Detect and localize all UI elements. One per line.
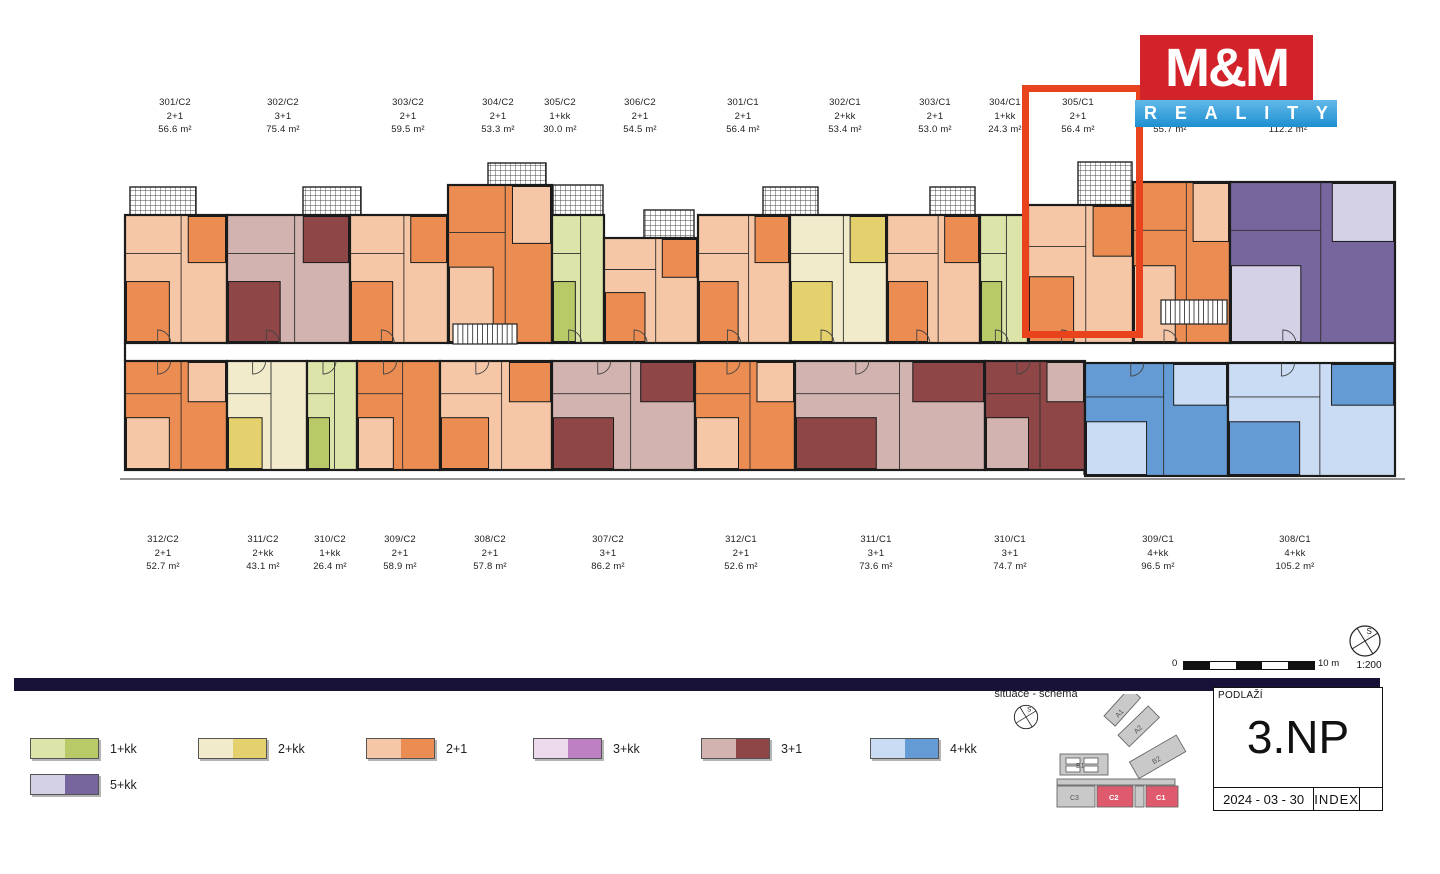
index-label: INDEX: [1313, 788, 1359, 810]
plan-unit-310-C2: [307, 361, 357, 470]
plan-unit-310-C1: [985, 361, 1085, 470]
unit-area: 52.6 m²: [693, 560, 789, 574]
unit-id: 308/C2: [442, 533, 538, 547]
plan-unit-301-C1: [698, 215, 790, 343]
unit-label-302-C1: 302/C12+kk53.4 m²: [797, 96, 893, 137]
plan-unit-303-C2: [350, 215, 448, 343]
unit-id: 306/C2: [592, 96, 688, 110]
logo-mm-block: M&M: [1140, 35, 1313, 100]
unit-id: 303/C2: [360, 96, 456, 110]
unit-layout: 2+1: [442, 547, 538, 561]
unit-layout: 4+kk: [1110, 547, 1206, 561]
unit-id: 302/C1: [797, 96, 893, 110]
highlight-box-305-C1: [1022, 85, 1143, 338]
unit-area: 59.5 m²: [360, 123, 456, 137]
unit-layout: 3+1: [828, 547, 924, 561]
unit-label-312-C2: 312/C22+152.7 m²: [115, 533, 211, 574]
logo-letter: E: [1175, 103, 1187, 124]
unit-id: 312/C2: [115, 533, 211, 547]
legend-item-2+kk: 2+kk: [198, 738, 305, 759]
plan-unit-311-C2: [227, 361, 307, 470]
unit-area: 56.6 m²: [127, 123, 223, 137]
unit-label-301-C2: 301/C22+156.6 m²: [127, 96, 223, 137]
logo-reality-strip: REALITY: [1135, 100, 1337, 127]
plan-unit-303-C1: [887, 215, 980, 343]
unit-area: 53.4 m²: [797, 123, 893, 137]
title-block: PODLAŽÍ 3.NP 2024 - 03 - 30 INDEX: [1213, 687, 1383, 811]
north-compass-icon: S: [1347, 623, 1383, 664]
unit-area: 105.2 m²: [1247, 560, 1343, 574]
unit-layout: 2+1: [693, 547, 789, 561]
unit-area: 86.2 m²: [560, 560, 656, 574]
mm-reality-logo: M&M REALITY: [1135, 35, 1337, 127]
legend-label: 4+kk: [950, 742, 977, 756]
unit-layout: 2+1: [352, 547, 448, 561]
swatch-dark: [401, 739, 435, 758]
plan-unit-307-C1: [1230, 182, 1395, 343]
unit-layout: 2+kk: [797, 110, 893, 124]
svg-text:C2: C2: [1109, 793, 1119, 802]
unit-layout: 3+1: [560, 547, 656, 561]
legend-swatch: [30, 774, 99, 795]
unit-area: 96.5 m²: [1110, 560, 1206, 574]
plan-unit-302-C2: [227, 215, 350, 343]
legend-label: 3+kk: [613, 742, 640, 756]
floor-number: 3.NP: [1214, 710, 1382, 764]
swatch-dark: [233, 739, 267, 758]
legend-swatch: [870, 738, 939, 759]
svg-text:S: S: [1367, 627, 1372, 636]
plan-unit-304-C1: [980, 215, 1028, 343]
unit-label-306-C2: 306/C22+154.5 m²: [592, 96, 688, 137]
unit-id: 307/C2: [560, 533, 656, 547]
legend-swatch: [533, 738, 602, 759]
unit-label-307-C2: 307/C23+186.2 m²: [560, 533, 656, 574]
legend-item-4+kk: 4+kk: [870, 738, 977, 759]
legend-swatch: [30, 738, 99, 759]
swatch-dark: [65, 739, 99, 758]
plan-unit-308-C1: [1228, 363, 1395, 476]
legend-item-3+1: 3+1: [701, 738, 802, 759]
legend-swatch: [701, 738, 770, 759]
unit-label-310-C1: 310/C13+174.7 m²: [962, 533, 1058, 574]
unit-id: 310/C1: [962, 533, 1058, 547]
unit-area: 52.7 m²: [115, 560, 211, 574]
legend-item-3+kk: 3+kk: [533, 738, 640, 759]
unit-layout: 2+1: [115, 547, 211, 561]
logo-letter: T: [1287, 103, 1298, 124]
legend-item-5+kk: 5+kk: [30, 774, 137, 795]
swatch-light: [702, 739, 736, 758]
unit-id: 301/C1: [695, 96, 791, 110]
unit-id: 308/C1: [1247, 533, 1343, 547]
legend-label: 2+1: [446, 742, 467, 756]
unit-id: 301/C2: [127, 96, 223, 110]
unit-label-312-C1: 312/C12+152.6 m²: [693, 533, 789, 574]
plan-unit-309-C1: [1085, 363, 1228, 476]
unit-id: 302/C2: [235, 96, 331, 110]
plan-unit-312-C1: [695, 361, 795, 470]
legend-label: 1+kk: [110, 742, 137, 756]
unit-label-308-C2: 308/C22+157.8 m²: [442, 533, 538, 574]
unit-layout: 2+1: [127, 110, 223, 124]
legend-label: 2+kk: [278, 742, 305, 756]
plan-unit-312-C2: [125, 361, 227, 470]
unit-label-303-C2: 303/C22+159.5 m²: [360, 96, 456, 137]
floor-label: PODLAŽÍ: [1218, 690, 1263, 701]
plan-unit-306-C2: [604, 238, 698, 343]
unit-layout: 2+1: [695, 110, 791, 124]
site-map: A1A2B1B2C3C2C1: [1052, 694, 1202, 821]
swatch-dark: [568, 739, 602, 758]
plan-unit-311-C1: [795, 361, 985, 470]
unit-area: 73.6 m²: [828, 560, 924, 574]
svg-text:C3: C3: [1070, 795, 1079, 802]
plan-unit-304-C2: [448, 185, 552, 343]
legend-label: 3+1: [781, 742, 802, 756]
unit-label-309-C2: 309/C22+158.9 m²: [352, 533, 448, 574]
legend-item-2+1: 2+1: [366, 738, 467, 759]
svg-text:C1: C1: [1156, 793, 1166, 802]
logo-letter: R: [1144, 103, 1157, 124]
legend-swatch: [198, 738, 267, 759]
plan-unit-302-C1: [790, 215, 887, 343]
index-value-cell: [1359, 788, 1382, 810]
svg-text:B1: B1: [1076, 763, 1085, 770]
plan-unit-309-C2: [357, 361, 440, 470]
situace-compass-icon: S: [1012, 703, 1040, 736]
unit-label-301-C1: 301/C12+156.4 m²: [695, 96, 791, 137]
unit-area: 56.4 m²: [695, 123, 791, 137]
unit-area: 54.5 m²: [592, 123, 688, 137]
unit-layout: 2+1: [360, 110, 456, 124]
unit-layout: 3+1: [235, 110, 331, 124]
unit-id: 312/C1: [693, 533, 789, 547]
floorplan-sheet: 301/C22+156.6 m²302/C23+175.4 m²303/C22+…: [0, 0, 1440, 874]
unit-area: 58.9 m²: [352, 560, 448, 574]
plan-unit-307-C2: [552, 361, 695, 470]
unit-id: 309/C1: [1110, 533, 1206, 547]
swatch-light: [367, 739, 401, 758]
plan-unit-301-C2: [125, 215, 227, 343]
legend-swatch: [366, 738, 435, 759]
logo-mm-text: M&M: [1165, 37, 1288, 99]
unit-label-308-C1: 308/C14+kk105.2 m²: [1247, 533, 1343, 574]
logo-letter: L: [1235, 103, 1246, 124]
plan-unit-305-C2: [552, 215, 604, 343]
unit-id: 309/C2: [352, 533, 448, 547]
logo-letter: A: [1205, 103, 1218, 124]
svg-text:S: S: [1027, 707, 1031, 714]
swatch-dark: [905, 739, 939, 758]
unit-layout: 2+1: [592, 110, 688, 124]
unit-area: 74.7 m²: [962, 560, 1058, 574]
swatch-light: [31, 739, 65, 758]
unit-layout: 4+kk: [1247, 547, 1343, 561]
swatch-light: [871, 739, 905, 758]
swatch-light: [31, 775, 65, 794]
unit-label-311-C1: 311/C13+173.6 m²: [828, 533, 924, 574]
plan-unit-308-C2: [440, 361, 552, 470]
unit-layout: 3+1: [962, 547, 1058, 561]
drawing-date: 2024 - 03 - 30: [1214, 792, 1313, 807]
unit-id: 311/C1: [828, 533, 924, 547]
swatch-dark: [736, 739, 770, 758]
legend-item-1+kk: 1+kk: [30, 738, 137, 759]
unit-area: 57.8 m²: [442, 560, 538, 574]
legend-label: 5+kk: [110, 778, 137, 792]
unit-area: 75.4 m²: [235, 123, 331, 137]
title-block-footer: 2024 - 03 - 30 INDEX: [1214, 787, 1382, 810]
logo-letter: Y: [1316, 103, 1328, 124]
swatch-light: [199, 739, 233, 758]
logo-letter: I: [1264, 103, 1269, 124]
swatch-light: [534, 739, 568, 758]
unit-label-309-C1: 309/C14+kk96.5 m²: [1110, 533, 1206, 574]
unit-label-302-C2: 302/C23+175.4 m²: [235, 96, 331, 137]
swatch-dark: [65, 775, 99, 794]
